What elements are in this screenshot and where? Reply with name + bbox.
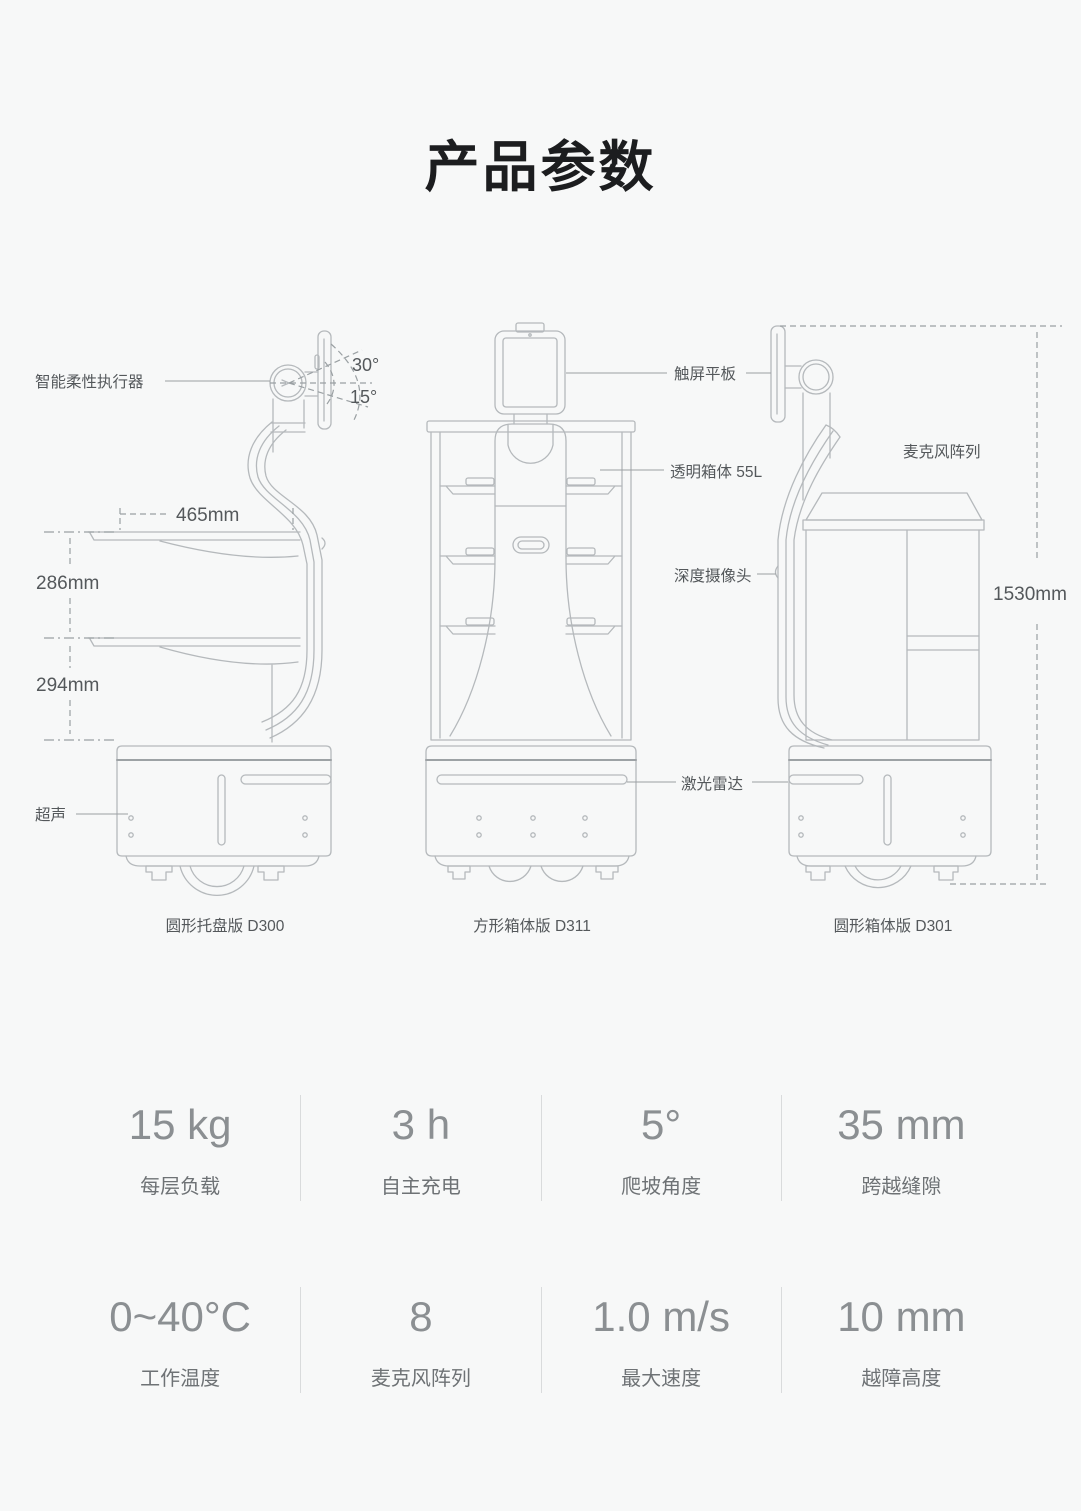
spec-label: 工作温度 — [140, 1365, 220, 1393]
robot-diagrams: 30° 15° 465mm 286mm 294mm — [0, 0, 1081, 1010]
spec-label: 最大速度 — [621, 1365, 701, 1393]
spec-cell-mic-array: 8 麦克风阵列 — [300, 1287, 540, 1393]
caption-d311: 方形箱体版 D311 — [473, 917, 591, 935]
spec-label: 自主充电 — [381, 1173, 461, 1201]
tray-gap-lower-dim: 294mm — [36, 675, 99, 696]
ultrasonic-label: 超声 — [35, 806, 66, 824]
spec-row-1: 15 kg 每层负载 3 h 自主充电 5° 爬坡角度 35 mm 跨越缝隙 — [60, 1095, 1021, 1201]
spec-row-2: 0~40°C 工作温度 8 麦克风阵列 1.0 m/s 最大速度 10 mm 越… — [60, 1287, 1021, 1393]
d301-height-dimension: 1530mm — [780, 326, 1067, 884]
spec-value: 10 mm — [837, 1287, 965, 1347]
spec-label: 麦克风阵列 — [371, 1365, 471, 1393]
tray-width-dim: 465mm — [176, 505, 239, 526]
spec-label: 跨越缝隙 — [861, 1173, 941, 1201]
actuator-label: 智能柔性执行器 — [35, 373, 144, 391]
transparent-box-label: 透明箱体 55L — [670, 463, 763, 481]
spec-cell-gap: 35 mm 跨越缝隙 — [781, 1095, 1021, 1201]
robot-captions: 圆形托盘版 D300 方形箱体版 D311 圆形箱体版 D301 — [166, 916, 953, 935]
spec-cell-speed: 1.0 m/s 最大速度 — [541, 1287, 781, 1393]
spec-cell-temperature: 0~40°C 工作温度 — [60, 1287, 300, 1393]
robot-d300-drawing — [88, 331, 331, 895]
lidar-label: 激光雷达 — [681, 775, 743, 793]
spec-label: 每层负载 — [140, 1173, 220, 1201]
spec-cell-charging: 3 h 自主充电 — [300, 1095, 540, 1201]
spec-value: 35 mm — [837, 1095, 965, 1155]
caption-d301: 圆形箱体版 D301 — [834, 917, 953, 935]
angle-down-label: 15° — [350, 387, 377, 407]
spec-cell-obstacle: 10 mm 越障高度 — [781, 1287, 1021, 1393]
spec-value: 15 kg — [129, 1095, 232, 1155]
robot-d301-drawing — [771, 326, 991, 888]
total-height-dim: 1530mm — [993, 584, 1067, 605]
spec-cell-payload: 15 kg 每层负载 — [60, 1095, 300, 1201]
spec-label: 越障高度 — [861, 1365, 941, 1393]
depth-camera-label: 深度摄像头 — [674, 567, 752, 585]
spec-value: 5° — [641, 1095, 681, 1155]
spec-value: 3 h — [392, 1095, 450, 1155]
caption-d300: 圆形托盘版 D300 — [166, 916, 285, 935]
spec-label: 爬坡角度 — [621, 1173, 701, 1201]
tray-gap-upper-dim: 286mm — [36, 573, 99, 594]
spec-sheet-page: 产品参数 — [0, 0, 1081, 1511]
robot-d311-drawing — [426, 323, 636, 881]
spec-value: 0~40°C — [109, 1287, 251, 1347]
mic-array-label: 麦克风阵列 — [903, 443, 981, 461]
spec-value: 8 — [409, 1287, 432, 1347]
spec-cell-slope: 5° 爬坡角度 — [541, 1095, 781, 1201]
angle-up-label: 30° — [352, 355, 379, 375]
touchscreen-label: 触屏平板 — [674, 365, 736, 383]
spec-value: 1.0 m/s — [592, 1287, 730, 1347]
